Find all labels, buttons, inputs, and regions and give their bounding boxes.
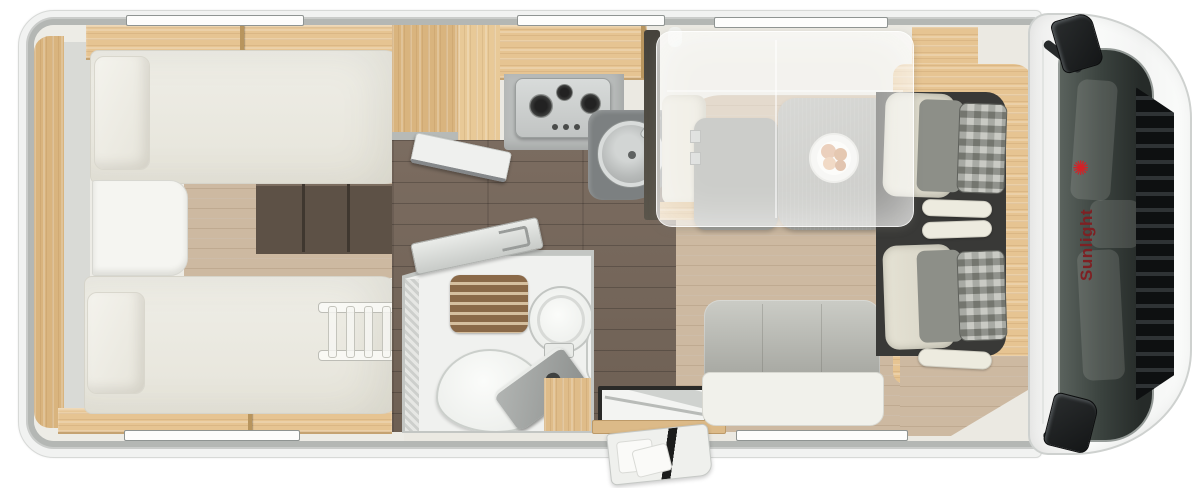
rear-wall-cabinet [34,36,64,428]
front-bench-cushion [704,300,880,380]
bed-ladder-rung [382,306,391,358]
seat-headrest-checker [956,102,1007,194]
sink-drain [628,151,636,159]
bathroom-cabinet [544,378,592,431]
bathroom-left-wall [405,279,419,431]
step-edge [347,184,350,252]
hob-knob [552,124,558,130]
seat-armrest [922,220,993,239]
overhead-locker-kitchen [497,25,647,80]
overlay-seam [667,90,903,92]
window-bottom-bedroom [124,430,300,441]
pillow-top-bed [94,56,150,170]
window-bottom-dinette [736,430,908,441]
driver-seat [882,242,1008,350]
entry-door-open [606,423,713,485]
hob-knob [574,124,580,130]
door-towel-bar [498,225,531,252]
bed-ladder-rung [364,306,373,358]
bench-seam [821,304,822,376]
bench-seam [762,304,763,376]
shower-grate [450,275,528,333]
step-edge [302,184,305,252]
bed-ladder-rung [328,306,337,358]
sunlight-logo-text: Sunlight [1077,165,1099,325]
motorhome-floorplan: ✺ Sunlight [0,0,1200,488]
seat-armrest [918,348,993,370]
overlay-seam [775,40,777,218]
bed-ladder-rung [346,306,355,358]
bonnet-vent-grille [1136,84,1174,404]
seat-armrest [922,199,993,218]
bed-steps [256,184,392,254]
window-top-kitchen [517,15,665,26]
bedside-table [92,180,188,276]
pillow-bottom-bed [87,292,145,394]
bathroom-interior [405,253,591,431]
seat-headrest-checker [956,250,1007,342]
burner-large [529,94,553,118]
front-bench-frame [702,372,884,426]
drop-down-bed-overlay [656,31,914,227]
window-top-dinette [714,17,888,28]
toilet-seat-ring [537,295,585,345]
burner-small [556,84,573,101]
window-top-bedroom [126,15,304,26]
cab-door-seam [1042,40,1044,424]
hob-knob [563,124,569,130]
fridge-cabinet [458,25,500,145]
